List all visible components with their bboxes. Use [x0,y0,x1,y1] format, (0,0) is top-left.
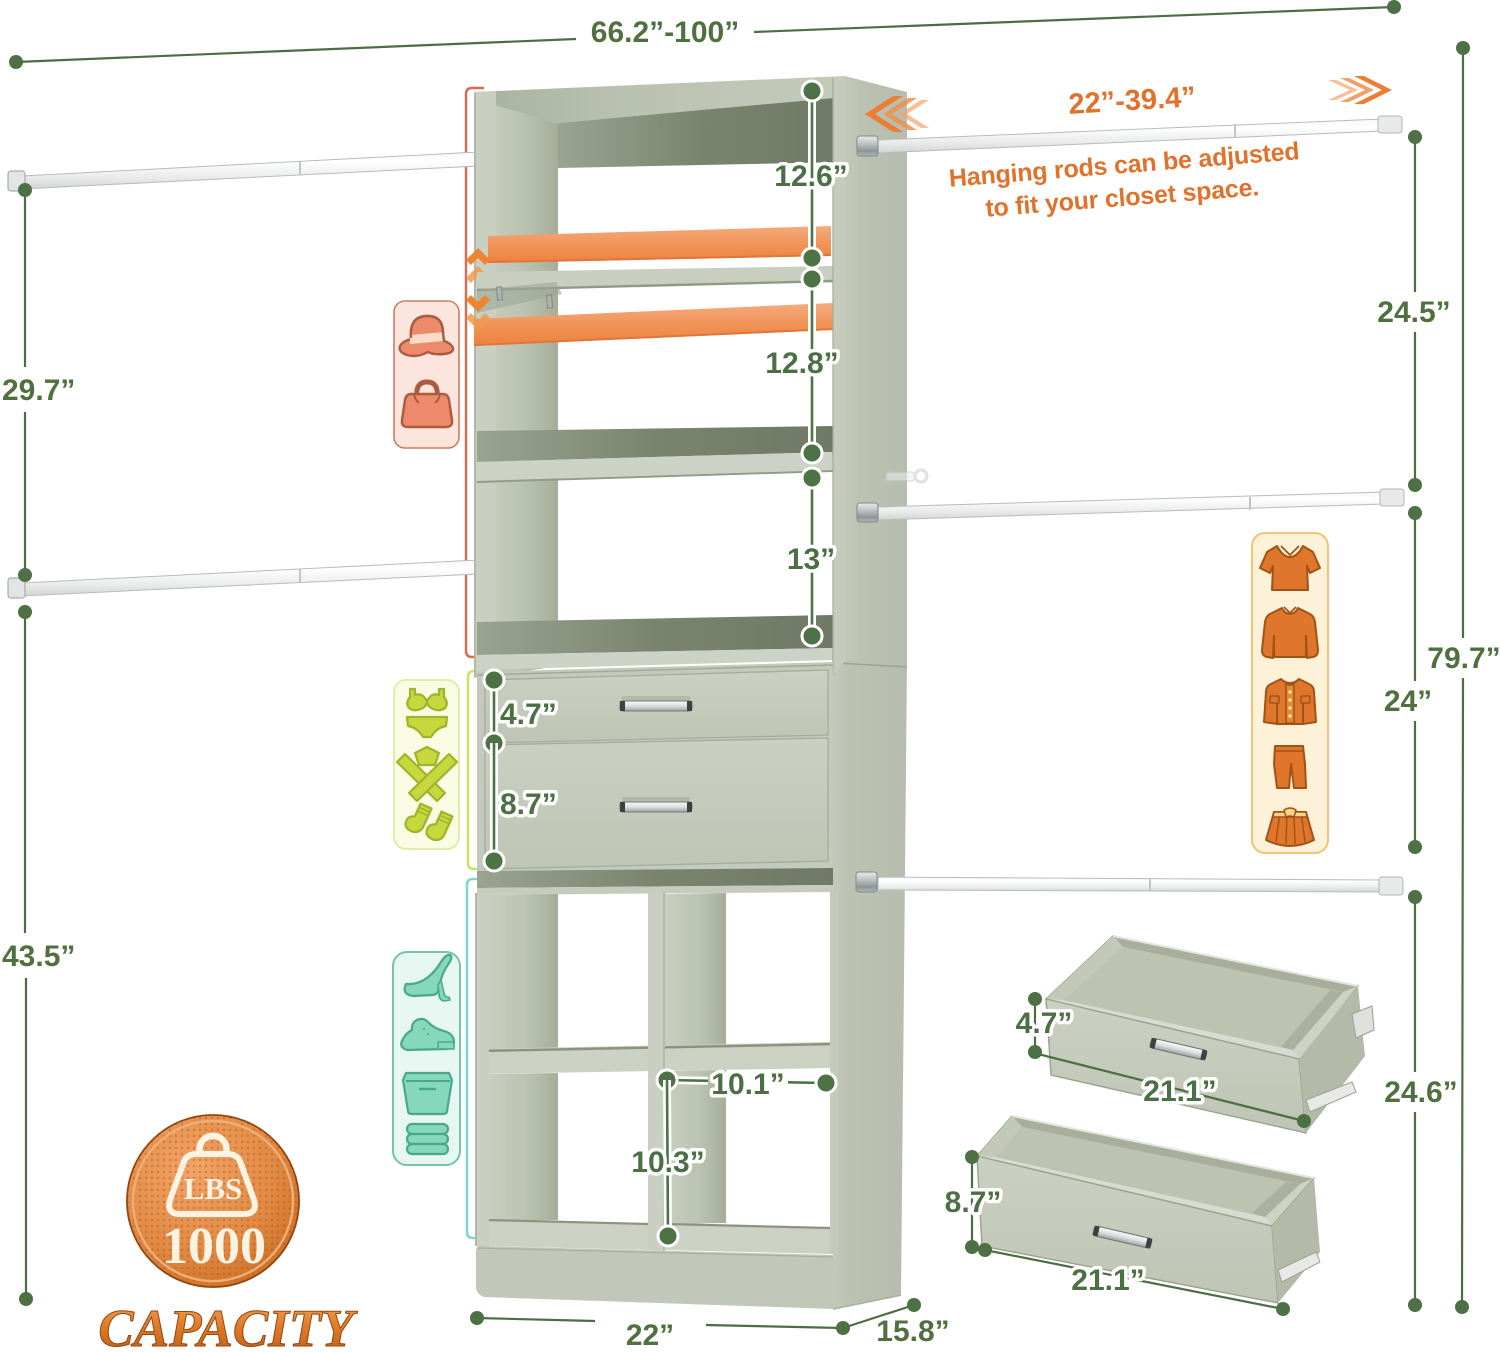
svg-text:12.8”: 12.8” [765,347,838,380]
svg-text:43.5”: 43.5” [2,940,75,973]
svg-text:24.5”: 24.5” [1377,296,1450,329]
svg-text:LBS: LBS [184,1171,243,1206]
svg-text:24.6”: 24.6” [1384,1076,1457,1109]
svg-text:13”: 13” [787,543,835,576]
svg-text:21.1”: 21.1” [1143,1075,1216,1108]
svg-text:CAPACITY: CAPACITY [98,1300,358,1352]
svg-text:24”: 24” [1384,685,1432,718]
svg-text:4.7”: 4.7” [1016,1007,1073,1040]
svg-text:1000: 1000 [162,1218,266,1275]
svg-text:29.7”: 29.7” [2,374,75,407]
svg-text:10.3”: 10.3” [631,1146,704,1179]
svg-text:12.6”: 12.6” [774,160,847,193]
svg-text:8.7”: 8.7” [945,1186,1002,1219]
svg-text:21.1”: 21.1” [1071,1264,1144,1297]
svg-text:66.2”-100”: 66.2”-100” [591,16,739,49]
svg-text:15.8”: 15.8” [876,1315,949,1348]
svg-text:8.7”: 8.7” [500,788,557,821]
svg-text:4.7”: 4.7” [500,698,557,731]
svg-text:22”: 22” [626,1319,674,1352]
svg-text:79.7”: 79.7” [1427,642,1500,675]
svg-text:10.1”: 10.1” [711,1068,784,1101]
